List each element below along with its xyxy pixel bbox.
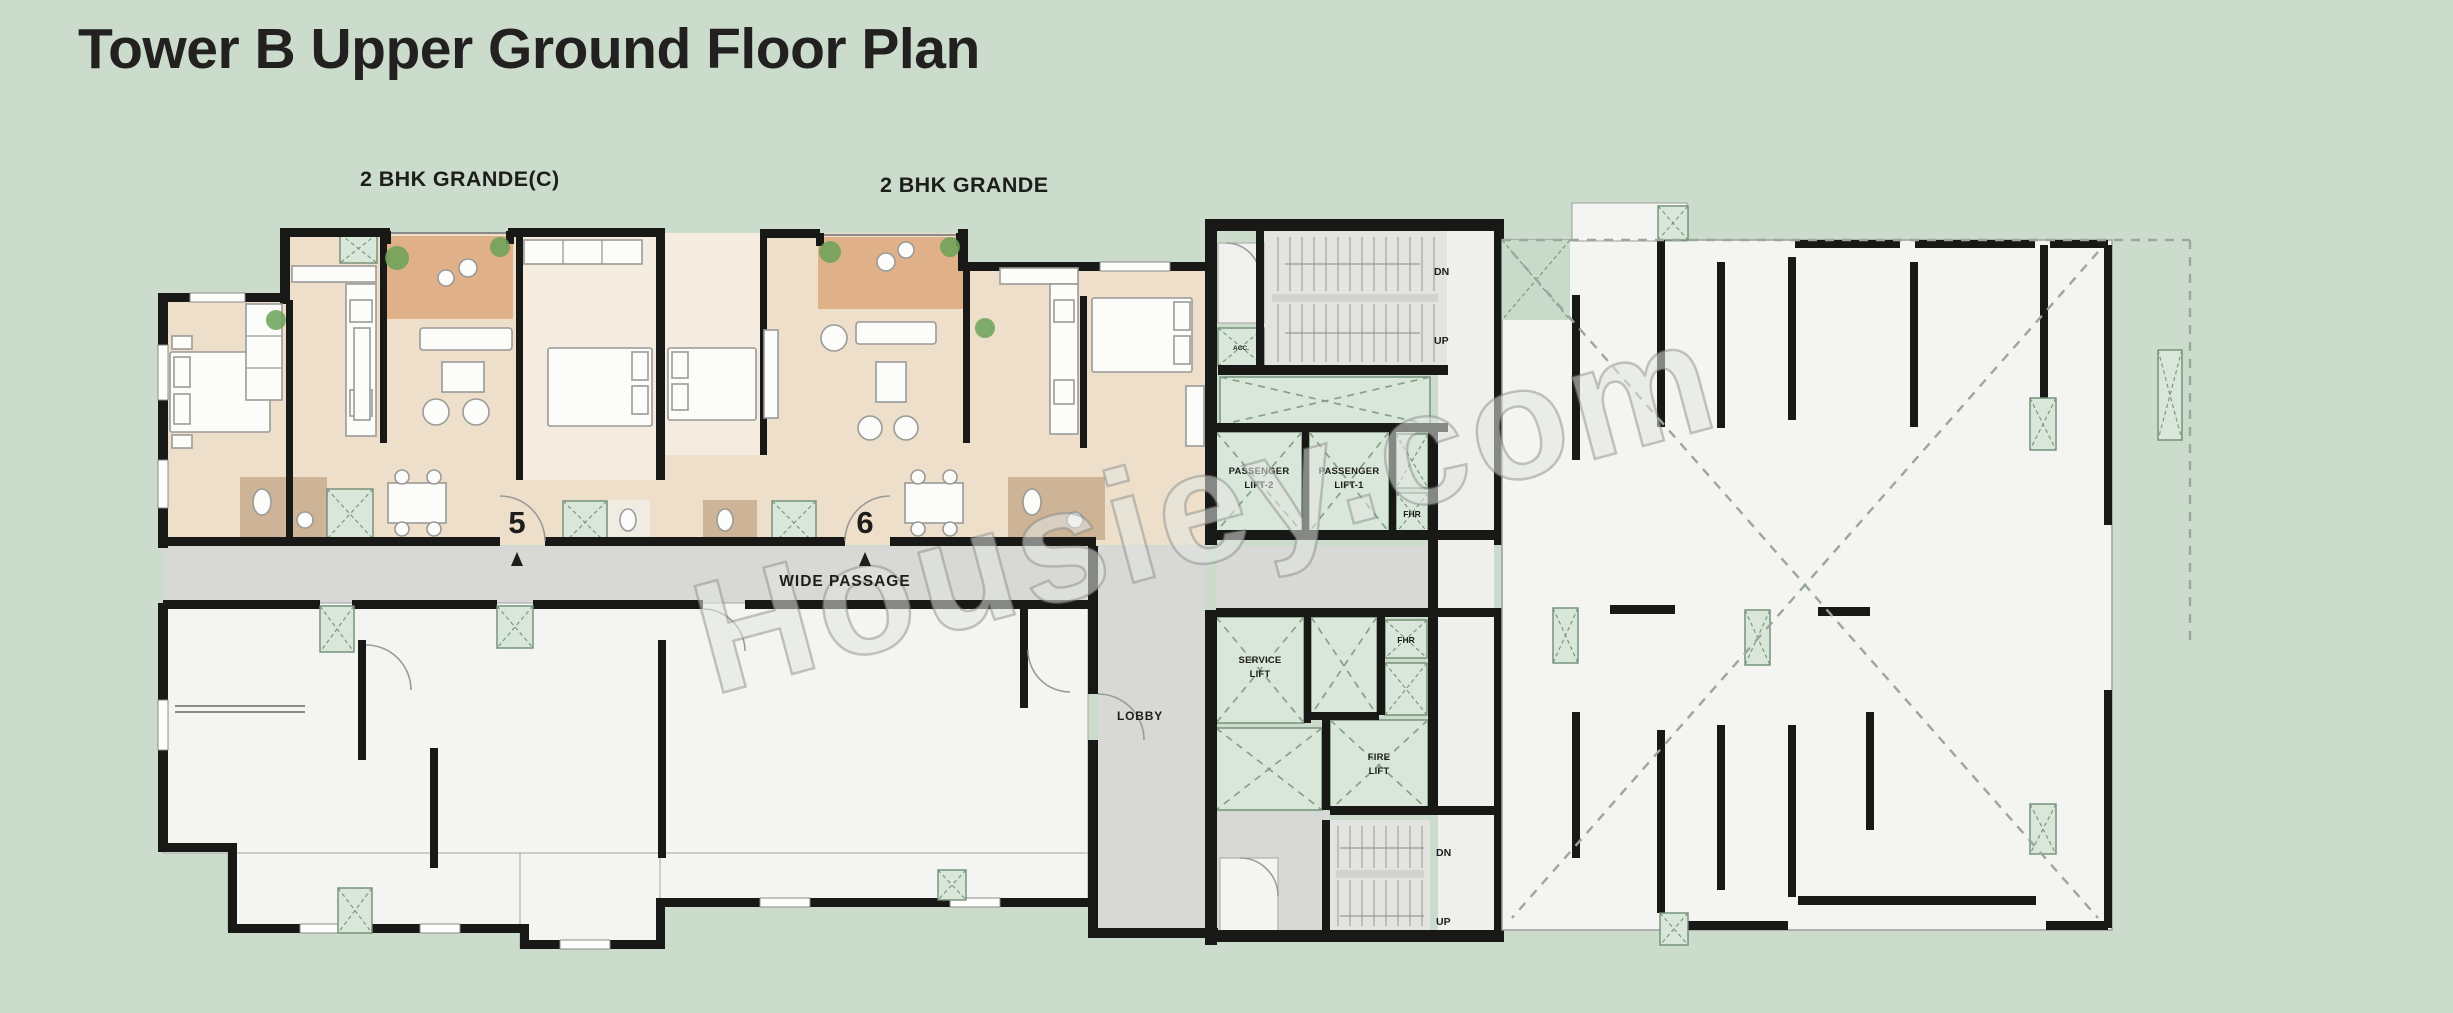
stair-top-up-label: UP xyxy=(1434,335,1449,347)
shaft xyxy=(2030,804,2056,854)
mid-shaft xyxy=(1311,617,1377,715)
unit5-number: 5 xyxy=(508,505,525,540)
plant xyxy=(940,237,960,257)
acc-shaft-label: ACC. xyxy=(1233,345,1249,352)
plant xyxy=(385,246,409,270)
window xyxy=(158,700,168,750)
window xyxy=(158,345,168,400)
stair-bottom-up-label: UP xyxy=(1436,916,1451,928)
shaft xyxy=(497,606,533,648)
big-shaft xyxy=(1216,728,1322,810)
plant xyxy=(266,310,286,330)
shaft xyxy=(2158,350,2182,440)
wardrobe xyxy=(524,240,642,264)
service-lift: SERVICELIFT xyxy=(1216,617,1304,723)
service-lift-label2: LIFT xyxy=(1250,669,1271,680)
tv-unit xyxy=(764,330,778,418)
shaft xyxy=(1658,206,1688,240)
floor-plan: ACC. PASSENGERLIFT-2 PASSENGERLIFT-1 FHR xyxy=(0,0,2453,1013)
fire-lift-label2: LIFT xyxy=(1369,766,1390,777)
fhr-lower-shaft: FHR xyxy=(1385,620,1427,715)
dining-table xyxy=(388,483,446,523)
kitchen-counter xyxy=(292,266,376,282)
fire-lift-label: FIRE xyxy=(1368,752,1390,763)
window xyxy=(1100,262,1170,271)
unit5-type-label: 2 BHK GRANDE(C) xyxy=(360,167,560,191)
unit6-bedroom2-floor xyxy=(660,233,760,455)
window xyxy=(190,293,245,302)
sofa xyxy=(856,322,936,344)
shaft xyxy=(2030,398,2056,450)
shaft xyxy=(1553,608,1578,663)
wc xyxy=(620,509,636,531)
fhr-lower-label: FHR xyxy=(1397,635,1414,645)
fire-lift: FIRELIFT xyxy=(1330,720,1428,810)
shaft xyxy=(320,606,354,652)
shaft xyxy=(338,888,372,933)
kitchen-counter xyxy=(1000,268,1078,284)
shaft xyxy=(327,489,373,539)
wide-passage-label: WIDE PASSAGE xyxy=(779,573,910,590)
plant xyxy=(975,318,995,338)
floor-plan-page: { "title": "Tower B Upper Ground Floor P… xyxy=(0,0,2453,1013)
unit5-bathroom xyxy=(240,477,327,539)
tv-unit xyxy=(354,328,370,420)
lobby-label: LOBBY xyxy=(1117,709,1163,723)
window xyxy=(560,940,610,949)
window xyxy=(158,460,168,508)
basin xyxy=(297,512,313,528)
shaft xyxy=(938,870,966,900)
window xyxy=(300,924,340,933)
shaft xyxy=(340,234,377,263)
coffee-table xyxy=(442,362,484,392)
staircase-bottom xyxy=(1330,820,1430,933)
stair-top-dn-label: DN xyxy=(1434,266,1449,278)
window xyxy=(760,898,810,907)
wc xyxy=(717,509,733,531)
window xyxy=(420,924,460,933)
staircase-top xyxy=(1263,228,1447,368)
plant xyxy=(819,241,841,263)
service-lift-label: SERVICE xyxy=(1239,655,1282,666)
shaft xyxy=(1660,913,1688,945)
store-room xyxy=(1220,858,1278,931)
wc xyxy=(253,489,271,515)
unit6-type-label: 2 BHK GRANDE xyxy=(880,173,1048,197)
plant xyxy=(490,237,510,257)
sofa xyxy=(420,328,512,350)
unit6-number: 6 xyxy=(856,505,873,540)
coffee-table xyxy=(876,362,906,402)
stair-bottom-dn-label: DN xyxy=(1436,847,1451,859)
